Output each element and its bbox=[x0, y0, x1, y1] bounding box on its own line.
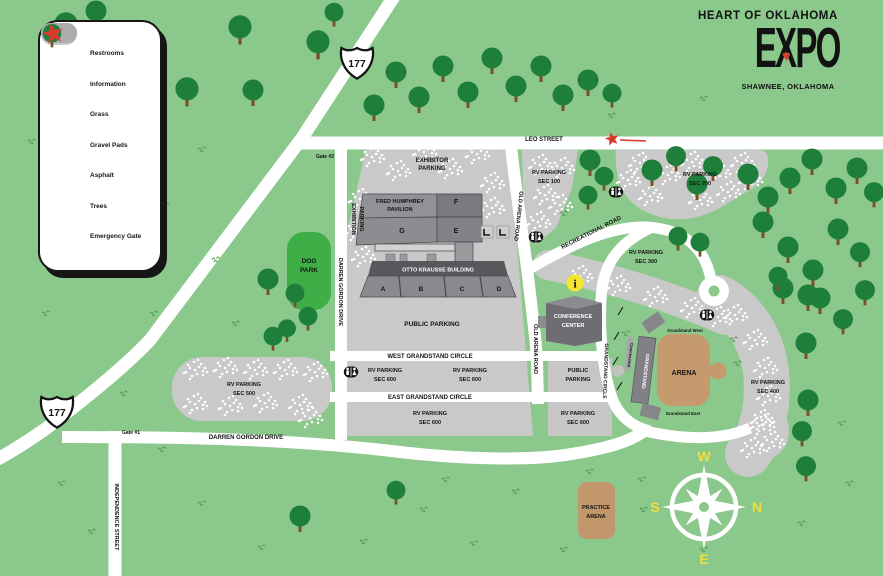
darren-gordon-drive-label: DARREN GORDON DRIVE bbox=[209, 435, 283, 441]
restrooms-icon bbox=[700, 309, 714, 320]
section-g-label: G bbox=[399, 228, 405, 235]
compass-w-label: W bbox=[697, 448, 711, 464]
section-a-label: A bbox=[381, 286, 386, 293]
compass-n-label: N bbox=[752, 499, 762, 515]
svg-text:PARK: PARK bbox=[300, 267, 318, 274]
roundabout-island bbox=[709, 286, 720, 297]
svg-text:PARKING: PARKING bbox=[566, 377, 591, 383]
legend-label: Trees bbox=[90, 203, 107, 211]
svg-text:CENTER: CENTER bbox=[562, 323, 585, 329]
grandstand-west-label: Grandstand West bbox=[667, 328, 703, 333]
west-grandstand-circle-label: WEST GRANDSTAND CIRCLE bbox=[387, 354, 472, 360]
rv-parking-sec300-label: RV PARKING bbox=[629, 250, 663, 256]
section-e-label: E bbox=[454, 228, 459, 235]
svg-text:SEC 300: SEC 300 bbox=[635, 259, 657, 265]
rv-parking-sec200-label: RV PARKING bbox=[683, 172, 717, 178]
restrooms-icon bbox=[609, 186, 623, 197]
rv-parking-sec500-label: RV PARKING bbox=[227, 382, 261, 388]
darren-gordon-drive-label-vertical: DARREN GORDON DRIVE bbox=[337, 258, 343, 326]
svg-text:PAVILION: PAVILION bbox=[387, 207, 412, 213]
legend-item-asphalt: Asphalt bbox=[44, 172, 156, 180]
rv-parking-sec600-label: RV PARKING bbox=[413, 411, 447, 417]
exhibitor-parking-label: EXHIBITOR bbox=[416, 158, 449, 164]
legend-item-trees: Trees bbox=[44, 203, 156, 211]
conference-center-building bbox=[538, 296, 602, 346]
information-icon: i bbox=[567, 275, 584, 292]
expo-logo: HEART OF OKLAHOMA EXPO ♥ SHAWNEE, OKLAHO… bbox=[698, 10, 826, 91]
legend-item-emergency-gate: Emergency Gate bbox=[44, 233, 156, 241]
public-parking-east-label: PUBLIC bbox=[568, 368, 589, 374]
grandstand-east-label: Grandstand East bbox=[666, 411, 701, 416]
svg-text:SEC 600: SEC 600 bbox=[459, 377, 481, 383]
practice-arena-label: PRACTICE bbox=[582, 505, 610, 511]
rv-parking-sec600-label: RV PARKING bbox=[368, 368, 402, 374]
gate-2-label: Gate #2 bbox=[316, 154, 334, 160]
legend-label: Gravel Pads bbox=[90, 142, 128, 150]
restrooms-icon bbox=[344, 366, 358, 377]
logo-city: SHAWNEE, OKLAHOMA bbox=[724, 82, 852, 91]
compass-s-label: S bbox=[650, 499, 659, 515]
compass-e-label: E bbox=[699, 551, 708, 567]
east-grandstand-circle-label: EAST GRANDSTAND CIRCLE bbox=[388, 395, 472, 401]
fred-humphrey-pavilion-label: FRED HUMPHREY bbox=[376, 199, 424, 205]
section-d-label: D bbox=[497, 286, 502, 293]
old-arena-road-label-lower: OLD ARENA ROAD bbox=[532, 324, 538, 374]
svg-text:SEC 200: SEC 200 bbox=[689, 181, 711, 187]
svg-text:PARKING: PARKING bbox=[358, 207, 364, 232]
conference-center-label: CONFERENCE bbox=[554, 314, 593, 320]
svg-text:SEC 400: SEC 400 bbox=[757, 389, 779, 395]
legend-item-information: i Information bbox=[44, 81, 156, 89]
legend-label: Emergency Gate bbox=[90, 233, 141, 241]
svg-text:SEC 600: SEC 600 bbox=[567, 420, 589, 426]
road-circle bbox=[612, 365, 624, 377]
legend-label: Grass bbox=[90, 111, 108, 119]
heart-icon: ♥ bbox=[782, 48, 791, 65]
legend-item-grass: Grass bbox=[44, 111, 156, 119]
svg-text:177: 177 bbox=[348, 58, 366, 70]
expo-map: i 177 177 LEO STREET DARREN GORDON DRIVE… bbox=[0, 0, 883, 576]
svg-text:SEC 500: SEC 500 bbox=[233, 391, 255, 397]
rv-parking-sec100-label: RV PARKING bbox=[532, 170, 566, 176]
arena-label: ARENA bbox=[672, 370, 697, 377]
legend-label: Information bbox=[90, 81, 126, 89]
public-parking-label: PUBLIC PARKING bbox=[404, 321, 460, 328]
gate-1-label: Gate #1 bbox=[122, 430, 140, 436]
restrooms-icon bbox=[529, 231, 543, 242]
otto-krausse-label: OTTO KRAUSSE BUILDING bbox=[402, 268, 474, 274]
legend-item-gravel-pads: Gravel Pads bbox=[44, 142, 156, 150]
svg-text:177: 177 bbox=[48, 407, 66, 419]
legend-item-restrooms: Restrooms bbox=[44, 50, 156, 58]
section-f-label: F bbox=[454, 199, 459, 206]
leo-street-label: LEO STREET bbox=[525, 137, 563, 143]
rv-parking-sec600-label: RV PARKING bbox=[453, 368, 487, 374]
svg-text:ARENA: ARENA bbox=[586, 514, 606, 520]
legend-label: Restrooms bbox=[90, 50, 124, 58]
rv-parking-sec400-label: RV PARKING bbox=[751, 380, 785, 386]
logo-wordmark: EXPO ♥ bbox=[724, 22, 852, 76]
svg-text:SEC 100: SEC 100 bbox=[538, 179, 560, 185]
svg-text:PARKING: PARKING bbox=[418, 166, 446, 172]
legend: Restrooms i Information Grass Gravel Pad… bbox=[38, 20, 162, 272]
svg-text:SEC 600: SEC 600 bbox=[374, 377, 396, 383]
dog-park-label: DOG bbox=[302, 258, 317, 265]
independence-street-label: INDEPENDENCE STREET bbox=[113, 484, 119, 552]
section-b-label: B bbox=[419, 286, 424, 293]
svg-text:SEC 600: SEC 600 bbox=[419, 420, 441, 426]
legend-label: Asphalt bbox=[90, 172, 114, 180]
rv-parking-sec600-label: RV PARKING bbox=[561, 411, 595, 417]
section-c-label: C bbox=[460, 286, 465, 293]
exhibition-parking-label: EXHIBITION bbox=[350, 203, 356, 235]
